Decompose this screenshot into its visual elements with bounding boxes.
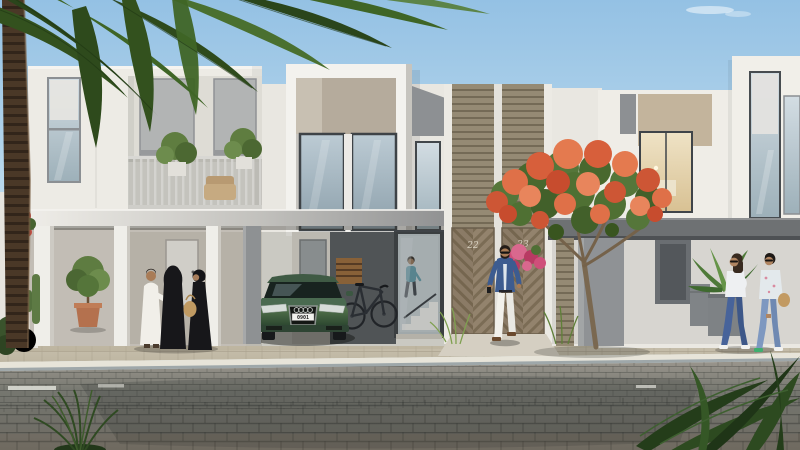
green-sneaker [754,348,763,352]
street-scene: 0901 22 23 [0,0,800,450]
woman-abaya-back [160,266,186,350]
car-bay: 0901 [243,226,462,346]
carport-beam [28,210,448,226]
gate-left: 22 [452,228,494,334]
tall-window-right [750,72,780,218]
slat-column [556,238,574,346]
sunglasses [501,252,510,254]
screenshot-root: 0901 22 23 [0,0,800,450]
handbag-right [778,293,790,307]
handbag [184,301,197,317]
bike-saddle [355,283,364,286]
balcony-sofa [204,176,236,200]
house-number-left: 22 [466,241,479,251]
license-plate-text: 0901 [297,315,309,321]
tall-window-left [48,78,80,182]
edge-window [784,96,800,214]
